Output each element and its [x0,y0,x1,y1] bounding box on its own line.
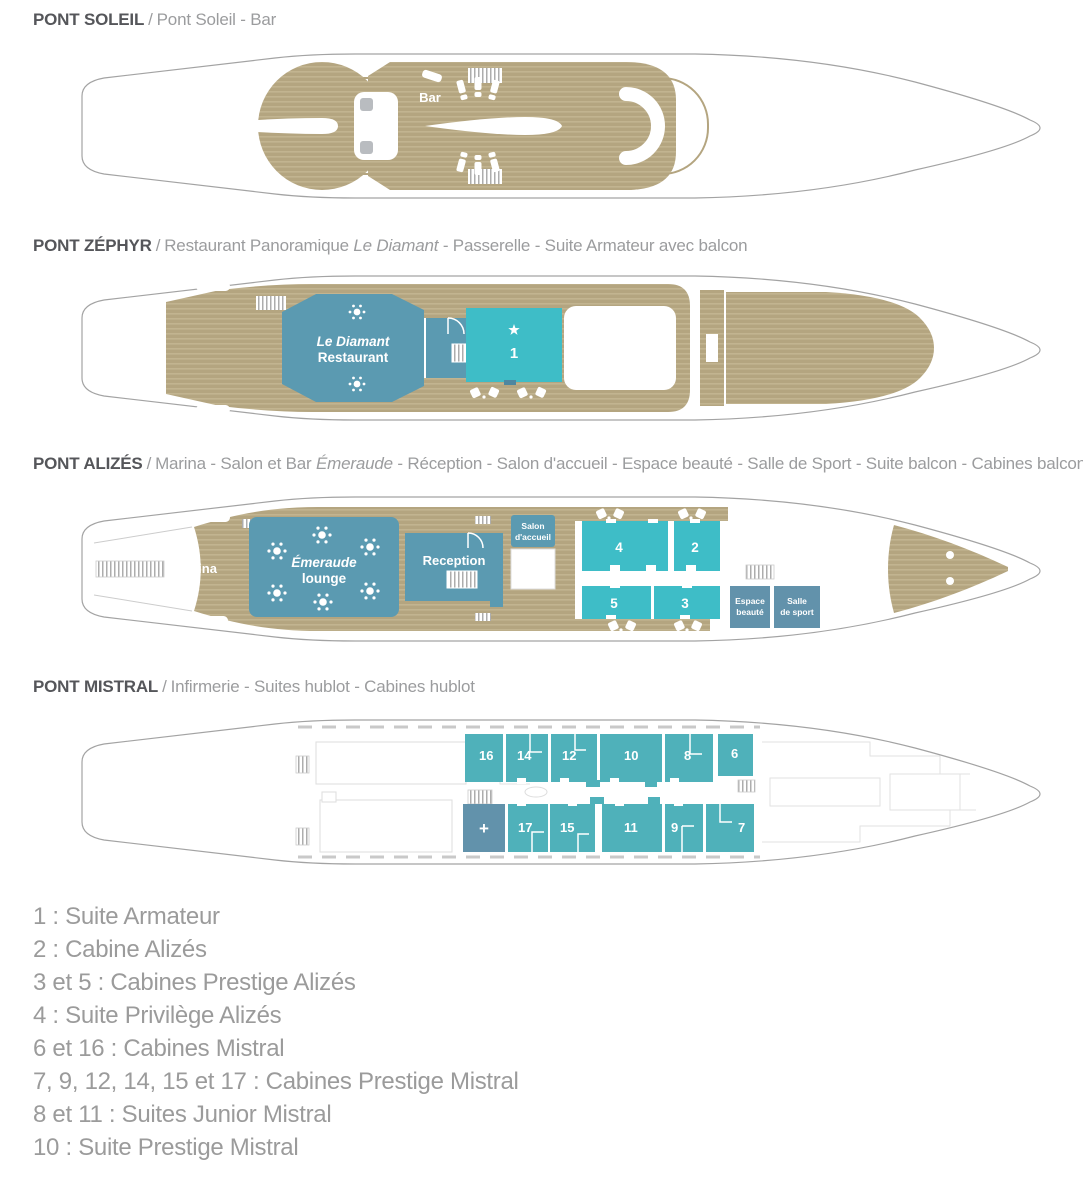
bar-label: Bar [419,90,441,105]
restaurant-name-label: Le Diamant [317,334,390,349]
legend-item: 4 : Suite Privilège Alizés [33,999,1083,1032]
cabin-7 [706,804,754,852]
deck-plan-mistral: 16 14 12 10 8 6 + 17 15 11 9 7 [70,712,1050,872]
separator: / [148,10,153,29]
lounge-label: lounge [302,571,347,586]
svg-text:beauté: beauté [736,607,764,617]
svg-text:10: 10 [624,748,638,763]
cabin-3-label: 3 [681,596,689,611]
stairs-icon [738,780,755,792]
deck-header-mistral: PONT MISTRAL/Infirmerie - Suites hublot … [33,677,1083,697]
salle-sport-label: Salle [787,596,807,606]
separator: / [162,677,167,696]
liferaft-icon [196,405,230,414]
cabin-2-label: 2 [691,540,699,555]
svg-text:9: 9 [671,820,678,835]
liferaft-icon [196,282,230,291]
svg-text:d'accueil: d'accueil [515,532,551,542]
reception-label: Reception [423,553,486,568]
legend-item: 8 et 11 : Suites Junior Mistral [33,1098,1083,1131]
svg-text:7: 7 [738,820,745,835]
suite-armateur-1: 1 [466,308,562,385]
svg-text:6: 6 [731,746,738,761]
svg-text:11: 11 [624,820,638,835]
legend-item: 3 et 5 : Cabines Prestige Alizés [33,966,1083,999]
marina-label: Marina [175,561,218,576]
svg-text:de sport: de sport [780,607,814,617]
legend-item: 1 : Suite Armateur [33,900,1083,933]
deck-header-alizes: PONT ALIZÉS/Marina - Salon et Bar Émerau… [33,454,1083,474]
grill-icon [475,613,491,621]
infirmerie-cross-icon: + [479,819,489,838]
zephyr-deck: Le Diamant Restaurant 1 [166,282,934,414]
espace-beaute-label: Espace [735,596,765,606]
deck-plan-soleil: Bar [70,46,1050,206]
marina-ladder-icon [96,561,164,577]
deck-title: PONT ZÉPHYR [33,236,152,255]
cabins-alizes: 4 2 5 3 [582,519,720,619]
liferaft-icon [198,616,228,625]
stairs-icon [746,565,774,579]
jacuzzi [354,92,398,160]
bow-deck [726,292,934,404]
suite-1-label: 1 [510,345,518,362]
grill-icon [475,516,491,524]
deck-title: PONT MISTRAL [33,677,158,696]
stairs-icon [447,571,477,588]
reception-area: Reception [405,533,503,607]
deck-plan-zephyr: Le Diamant Restaurant 1 [70,268,1050,428]
salon-accueil: Salon d'accueil [511,515,555,589]
wellness-area: Espace beauté Salle de sport [730,586,820,628]
stairs-icon [296,756,309,773]
cabin-5-label: 5 [610,596,618,611]
svg-text:16: 16 [479,748,493,763]
cabin-legend: 1 : Suite Armateur 2 : Cabine Alizés 3 e… [33,900,1083,1164]
separator: / [156,236,161,255]
liferaft-icon [200,513,230,522]
svg-text:Salon: Salon [521,521,544,531]
skylight-grill-icon [256,296,286,310]
restaurant-label: Restaurant [318,350,389,365]
legend-item: 10 : Suite Prestige Mistral [33,1131,1083,1164]
legend-item: 2 : Cabine Alizés [33,933,1083,966]
lounge-name-label: Émeraude [291,555,357,570]
legend-item: 6 et 16 : Cabines Mistral [33,1032,1083,1065]
deck-header-zephyr: PONT ZÉPHYR/Restaurant Panoramique Le Di… [33,236,1083,256]
cabin-4 [582,521,668,571]
emeraude-lounge: Émeraude lounge [249,517,399,617]
deck-title: PONT SOLEIL [33,10,144,29]
corridor-table [525,787,547,797]
svg-text:17: 17 [518,820,532,835]
suite-interior [564,306,676,390]
stairs-icon [296,828,309,845]
cabins-mistral-top: 16 14 12 10 8 6 [465,734,753,787]
deck-title: PONT ALIZÉS [33,454,143,473]
deck-plan-alizes: Marina Émeraude lounge Reception Salon d… [70,489,1050,649]
deck-header-soleil: PONT SOLEIL/Pont Soleil - Bar [33,10,1083,30]
cabin-4-label: 4 [615,540,623,555]
legend-item: 7, 9, 12, 14, 15 et 17 : Cabines Prestig… [33,1065,1083,1098]
separator: / [147,454,152,473]
stairs-icon [468,790,492,804]
svg-text:15: 15 [560,820,574,835]
